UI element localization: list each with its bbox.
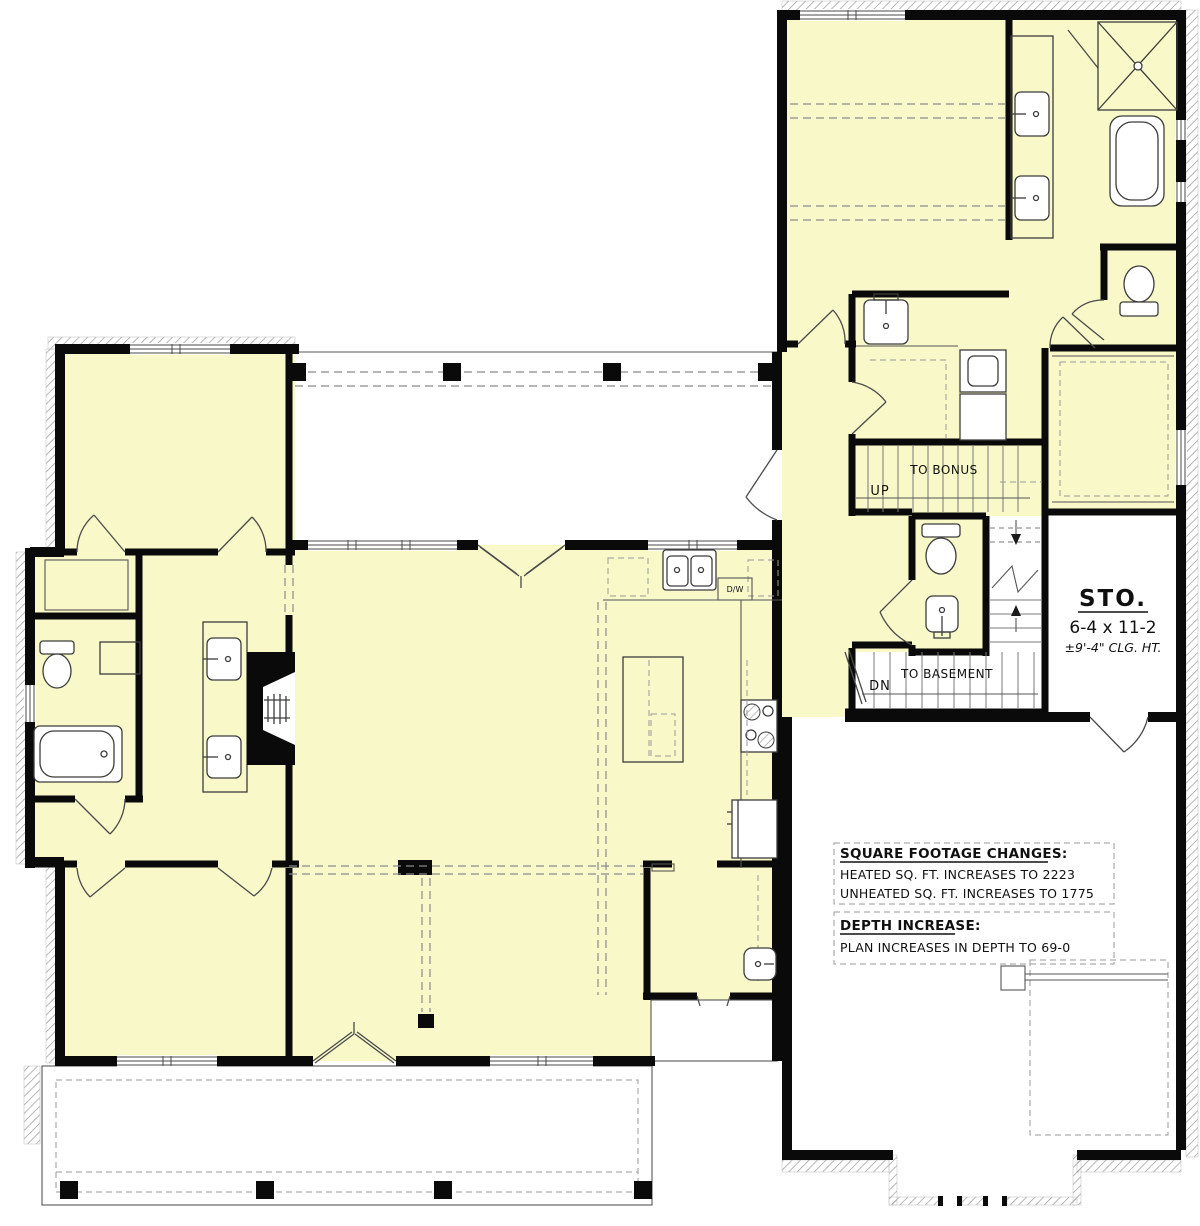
floor-plan-sheet: D/W bbox=[0, 0, 1200, 1226]
window bbox=[24, 685, 36, 722]
master-tub-icon bbox=[1110, 116, 1164, 206]
window bbox=[1175, 182, 1187, 202]
window bbox=[308, 539, 457, 551]
laundry-sink-icon bbox=[864, 294, 908, 344]
plan-notes: SQUARE FOOTAGE CHANGES: HEATED SQ. FT. I… bbox=[834, 843, 1114, 964]
porch-column bbox=[603, 363, 621, 381]
kitchen-sink-icon bbox=[663, 550, 716, 590]
fireplace-icon bbox=[247, 652, 295, 765]
pedestal-sink-icon bbox=[926, 596, 958, 638]
stairs-up-destination: TO BONUS bbox=[909, 463, 977, 477]
porch-column bbox=[443, 363, 461, 381]
window bbox=[1175, 120, 1187, 140]
range-icon bbox=[741, 700, 777, 752]
washer-dryer-icon bbox=[960, 350, 1006, 440]
window bbox=[648, 539, 737, 551]
porch-column bbox=[434, 1181, 452, 1199]
depth-line: PLAN INCREASES IN DEPTH TO 69-0 bbox=[840, 940, 1070, 955]
mud-sink-icon bbox=[744, 948, 776, 980]
stairs-up-label: UP bbox=[870, 484, 889, 499]
porch-column bbox=[256, 1181, 274, 1199]
sqft-heated-line: HEATED SQ. FT. INCREASES TO 2223 bbox=[840, 867, 1075, 882]
refrigerator-icon bbox=[727, 800, 777, 858]
bathtub-icon bbox=[34, 726, 122, 782]
porch-column bbox=[634, 1181, 652, 1199]
window bbox=[117, 1055, 217, 1067]
dishwasher-label: D/W bbox=[727, 585, 744, 594]
side-porch-floor bbox=[651, 1000, 777, 1061]
foyer-opening-post bbox=[398, 860, 432, 875]
storage-room-name: STO. bbox=[1079, 586, 1147, 612]
window bbox=[800, 9, 905, 21]
window bbox=[130, 343, 230, 355]
porch-column bbox=[60, 1181, 78, 1199]
rear-porch bbox=[288, 352, 779, 386]
toilet-tank-icon bbox=[922, 524, 960, 537]
toilet-bowl-icon bbox=[43, 654, 71, 688]
sqft-heading: SQUARE FOOTAGE CHANGES: bbox=[840, 846, 1068, 862]
storage-to-garage-door bbox=[1090, 717, 1148, 752]
window bbox=[1175, 430, 1187, 485]
storage-room-dimensions: 6-4 x 11-2 bbox=[1069, 618, 1156, 638]
center-body-fill bbox=[289, 545, 782, 1061]
garage: SQUARE FOOTAGE CHANGES: HEATED SQ. FT. I… bbox=[834, 843, 1168, 1135]
stairs-down-destination: TO BASEMENT bbox=[900, 667, 993, 681]
depth-heading: DEPTH INCREASE: bbox=[840, 918, 981, 934]
stairs-down-label: DN bbox=[869, 679, 891, 694]
toilet-tank-icon bbox=[40, 641, 74, 654]
toilet-bowl-icon bbox=[926, 538, 956, 574]
foyer-opening-post bbox=[418, 1014, 434, 1028]
window bbox=[490, 1055, 593, 1067]
floor-plan-drawing: D/W bbox=[0, 0, 1200, 1226]
storage-room-floor bbox=[1045, 512, 1181, 717]
hall-to-wing-door bbox=[746, 450, 777, 520]
sqft-unheated-line: UNHEATED SQ. FT. INCREASES TO 1775 bbox=[840, 886, 1094, 901]
garage-column bbox=[1001, 966, 1025, 990]
storage-room-ceiling: ±9'-4" CLG. HT. bbox=[1065, 640, 1162, 655]
